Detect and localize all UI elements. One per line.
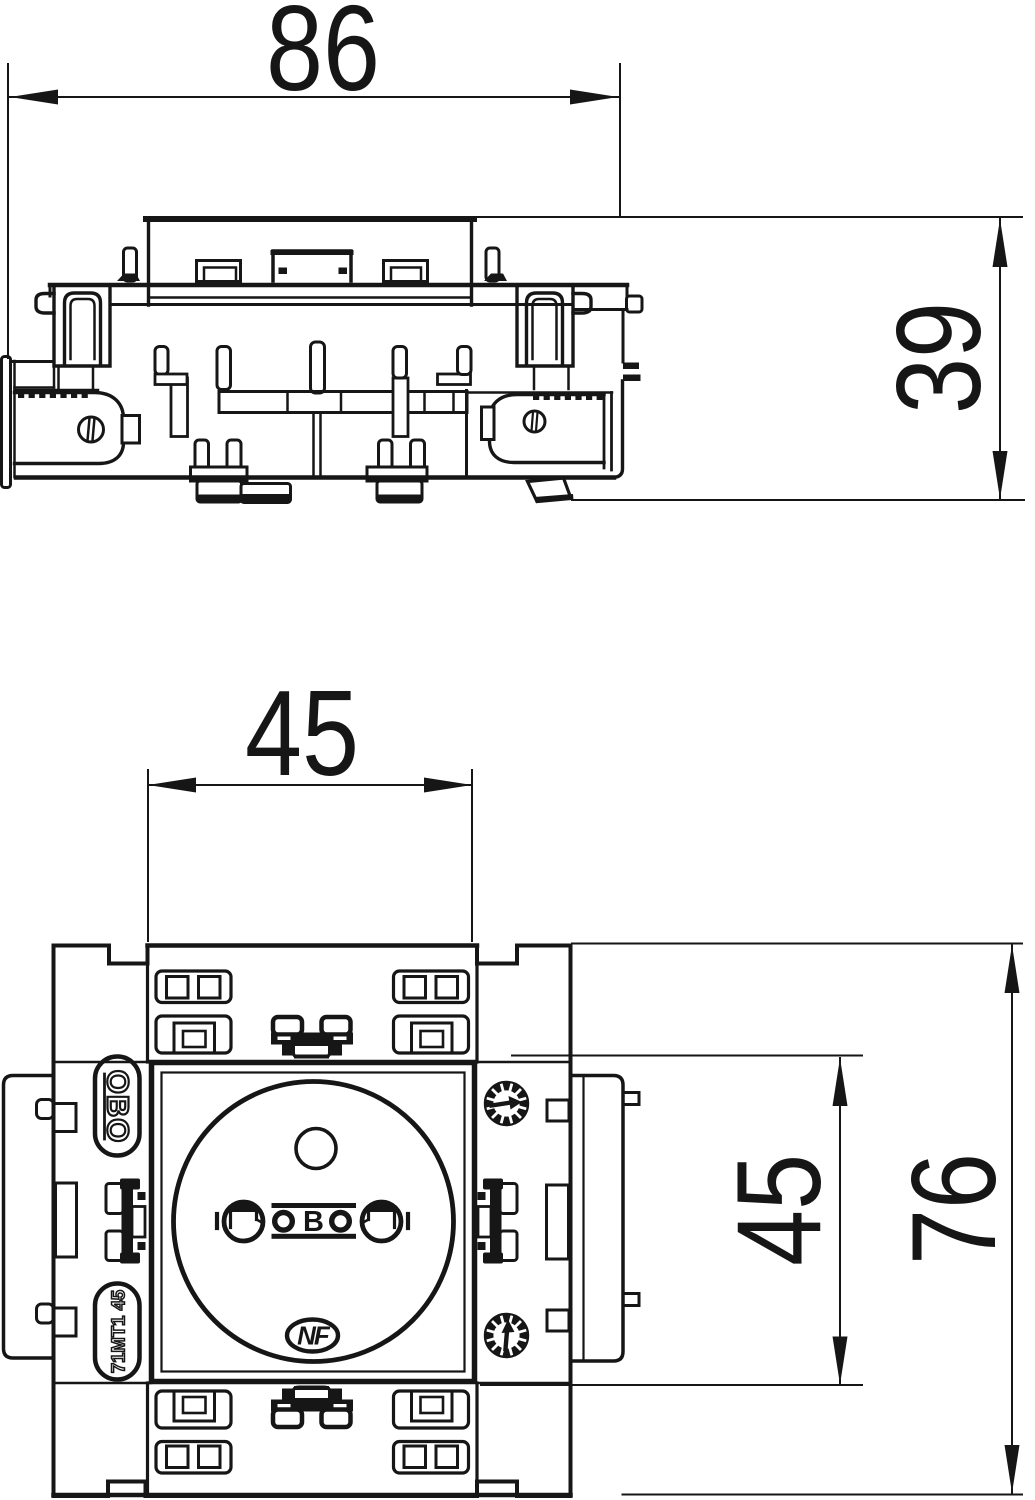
svg-text:39: 39: [873, 302, 1006, 414]
svg-text:B: B: [303, 1206, 324, 1238]
svg-text:71MT1 45: 71MT1 45: [108, 1290, 129, 1373]
svg-text:NF: NF: [297, 1321, 331, 1351]
svg-text:45: 45: [245, 665, 359, 801]
svg-text:45: 45: [713, 1154, 846, 1266]
svg-text:86: 86: [266, 0, 380, 116]
svg-text:76: 76: [888, 1153, 1021, 1265]
